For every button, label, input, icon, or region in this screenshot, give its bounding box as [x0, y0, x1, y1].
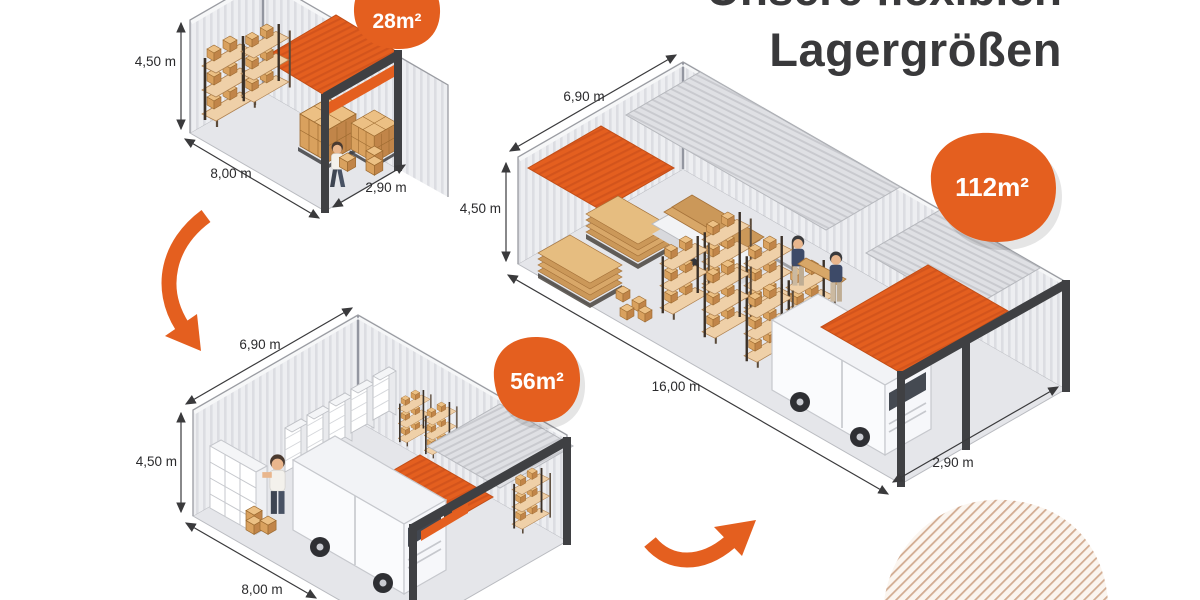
dim-height-label-56: 4,50 m	[136, 454, 177, 469]
curved-arrow-up-right-icon	[650, 520, 756, 560]
storage-unit-56: 6,90 m 4,50 m 8,00 m 56m²	[136, 308, 585, 600]
infographic-canvas: 4,50 m 8,00 m 2,90 m 28m²	[0, 0, 1200, 600]
dim-depth-label-28: 2,90 m	[365, 180, 406, 195]
dim-width-label-112: 16,00 m	[652, 379, 701, 394]
hatched-blob-decoration	[884, 500, 1108, 600]
wall-right-outer	[398, 56, 448, 197]
dim-height-label-28: 4,50 m	[135, 54, 176, 69]
curved-arrow-down-icon	[165, 216, 206, 351]
title-line-1: Unsere flexiblen	[707, 0, 1062, 16]
warehouse-sizes-infographic: 4,50 m 8,00 m 2,90 m 28m²	[0, 0, 1200, 600]
area-badge-56-label: 56m²	[510, 368, 564, 394]
locker-cabinet	[351, 380, 374, 433]
dim-depth-label-112: 2,90 m	[932, 455, 973, 470]
dim-top-label-56: 6,90 m	[239, 337, 280, 352]
area-badge-28-label: 28m²	[372, 10, 421, 33]
dim-width-label-56: 8,00 m	[241, 582, 282, 597]
dim-width-label-28: 8,00 m	[210, 166, 251, 181]
locker-cabinet	[373, 367, 396, 420]
storage-unit-28: 4,50 m 8,00 m 2,90 m 28m²	[135, 0, 448, 218]
dim-height-label-112: 4,50 m	[460, 201, 501, 216]
area-badge-112-label: 112m²	[955, 172, 1029, 202]
dim-top-label-112: 6,90 m	[563, 89, 604, 104]
page-title: Lagergrößen	[769, 22, 1062, 77]
